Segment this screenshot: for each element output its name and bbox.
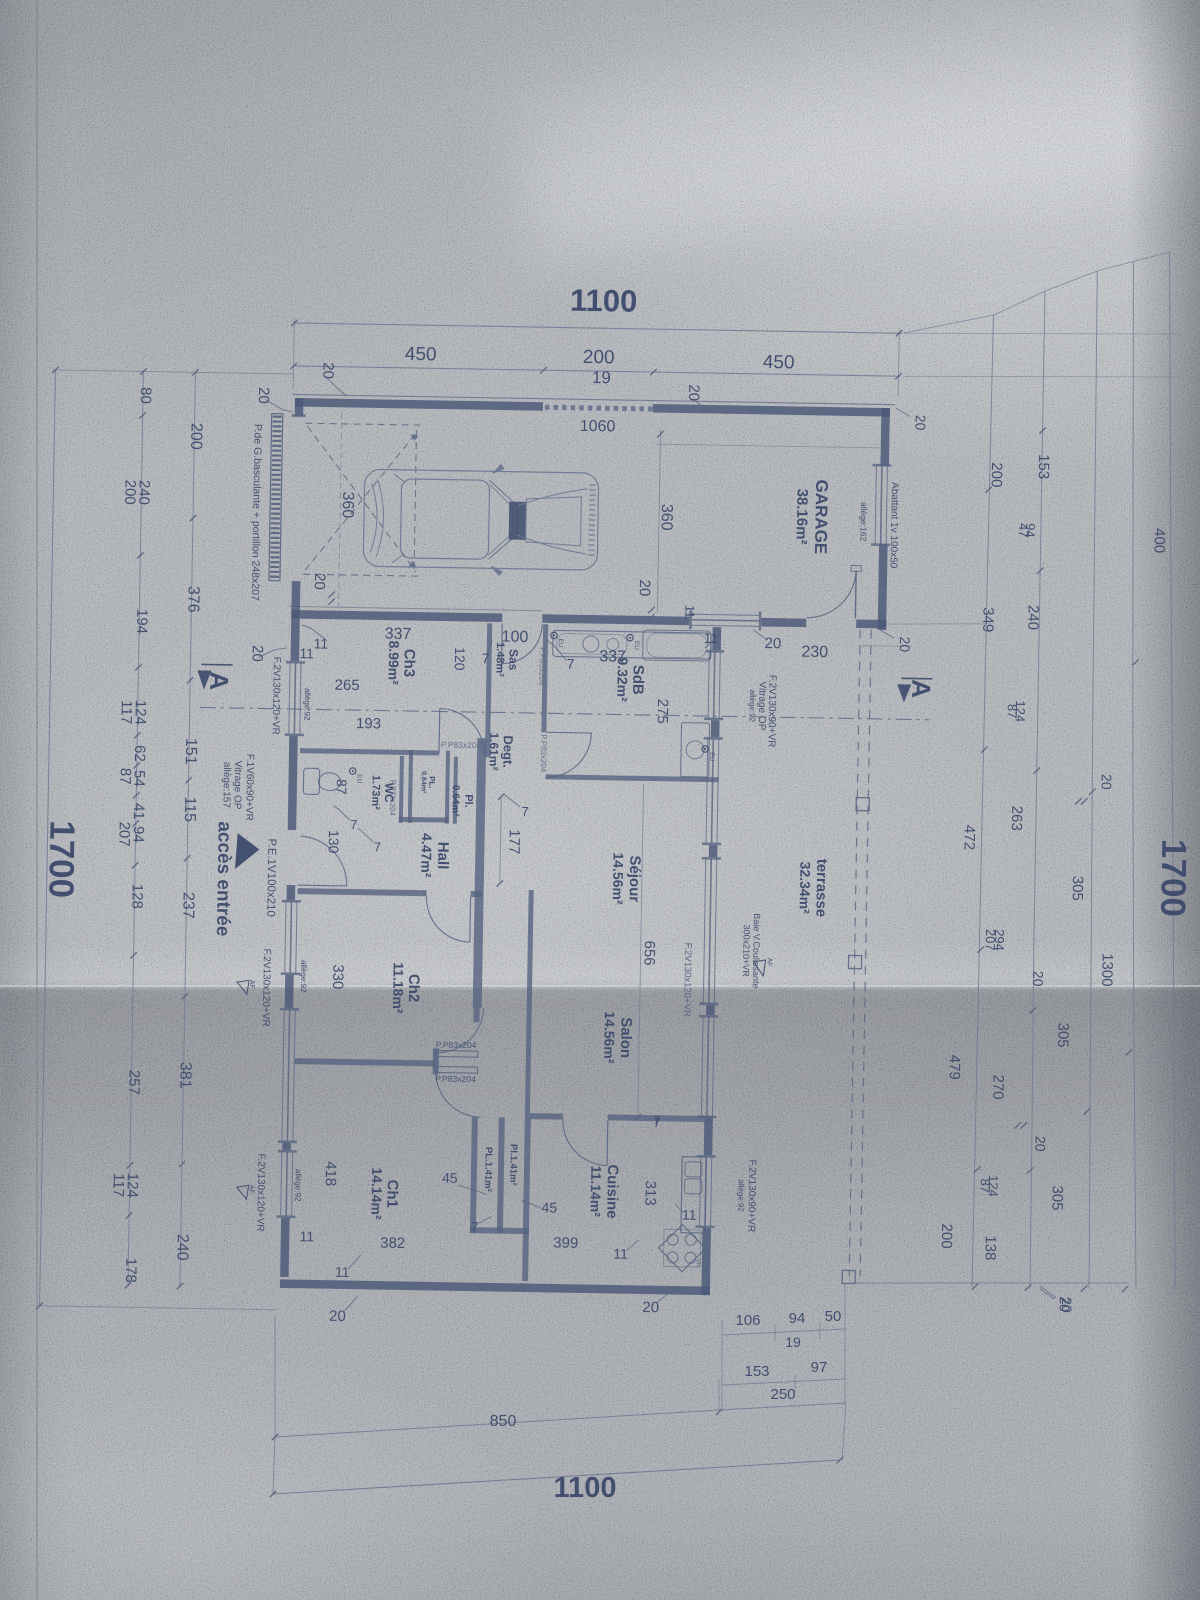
svg-text:656: 656 — [640, 940, 657, 965]
svg-text:F.2V130x120+VR: F.2V130x120+VR — [270, 657, 282, 735]
svg-text:257: 257 — [125, 1070, 142, 1095]
svg-text:450: 450 — [405, 344, 437, 366]
svg-text:P.P83x204: P.P83x204 — [435, 1073, 476, 1084]
svg-text:87: 87 — [334, 779, 350, 795]
svg-text:151: 151 — [182, 738, 199, 765]
svg-text:305: 305 — [1069, 876, 1086, 901]
svg-text:allège:92: allège:92 — [302, 688, 312, 721]
svg-text:41: 41 — [130, 803, 147, 820]
svg-text:1100: 1100 — [554, 1472, 617, 1504]
svg-text:153: 153 — [1035, 454, 1052, 479]
svg-text:138: 138 — [982, 1235, 999, 1260]
svg-text:AF: AF — [248, 980, 255, 989]
svg-text:PL.: PL. — [427, 776, 436, 789]
svg-text:P.P73x204: P.P73x204 — [388, 780, 398, 816]
svg-text:120: 120 — [452, 647, 468, 671]
svg-text:11.18m²: 11.18m² — [390, 962, 407, 1014]
svg-text:20: 20 — [329, 1308, 346, 1325]
svg-text:117: 117 — [109, 1173, 126, 1197]
svg-text:62: 62 — [131, 745, 148, 762]
svg-text:7: 7 — [653, 1113, 660, 1127]
svg-text:F.2V130x90+VR: F.2V130x90+VR — [766, 675, 778, 748]
svg-text:F.2V130x120+VR: F.2V130x120+VR — [681, 943, 693, 1018]
svg-text:153: 153 — [744, 1363, 769, 1380]
svg-text:EU: EU — [708, 752, 715, 761]
svg-text:11.14m²: 11.14m² — [587, 1165, 604, 1217]
svg-text:20: 20 — [1098, 774, 1114, 790]
svg-text:20: 20 — [642, 1299, 659, 1316]
svg-text:20: 20 — [319, 362, 336, 379]
svg-text:20: 20 — [255, 387, 272, 404]
svg-text:1.73m²: 1.73m² — [369, 775, 382, 810]
svg-text:87: 87 — [1005, 704, 1020, 719]
svg-text:360: 360 — [658, 504, 675, 531]
svg-text:106: 106 — [735, 1312, 760, 1329]
svg-text:230: 230 — [801, 644, 828, 661]
svg-text:7: 7 — [471, 1219, 478, 1234]
svg-text:20: 20 — [1030, 971, 1046, 987]
svg-text:terrasse: terrasse — [812, 859, 830, 918]
svg-text:47: 47 — [1016, 523, 1031, 538]
svg-text:200: 200 — [187, 423, 204, 450]
svg-text:Degt.: Degt. — [500, 735, 516, 768]
svg-text:20: 20 — [897, 636, 913, 652]
svg-text:45: 45 — [541, 1199, 557, 1215]
svg-text:337: 337 — [385, 626, 412, 643]
svg-text:100: 100 — [501, 629, 528, 646]
svg-text:11: 11 — [613, 1246, 628, 1262]
svg-text:87: 87 — [978, 1178, 993, 1193]
svg-text:19: 19 — [785, 1334, 801, 1350]
svg-text:EU: EU — [355, 774, 362, 783]
svg-text:allège:92: allège:92 — [299, 960, 309, 993]
svg-text:193: 193 — [356, 715, 381, 732]
svg-text:7: 7 — [482, 650, 490, 666]
svg-text:32.34m²: 32.34m² — [797, 861, 814, 914]
svg-text:11: 11 — [682, 1207, 697, 1223]
svg-text:7: 7 — [374, 839, 381, 854]
svg-text:1700: 1700 — [41, 820, 81, 899]
svg-text:263: 263 — [1008, 806, 1025, 831]
svg-text:117: 117 — [117, 700, 134, 724]
svg-text:240: 240 — [1024, 605, 1041, 630]
svg-text:F.1V60x90+VR: F.1V60x90+VR — [243, 754, 255, 821]
svg-text:50: 50 — [825, 1308, 842, 1325]
svg-text:207: 207 — [983, 929, 998, 951]
svg-text:Pl.: Pl. — [462, 794, 474, 808]
svg-text:237: 237 — [179, 892, 196, 919]
svg-text:20: 20 — [311, 573, 328, 590]
svg-text:80: 80 — [137, 387, 154, 404]
svg-text:Sas: Sas — [506, 649, 520, 671]
svg-text:allège:92: allège:92 — [736, 1179, 746, 1212]
svg-text:400: 400 — [1150, 528, 1167, 553]
svg-text:1.61m²: 1.61m² — [487, 732, 502, 770]
svg-text:allège:92: allège:92 — [747, 689, 757, 722]
svg-text:265: 265 — [334, 677, 359, 694]
svg-text:P.P83x204: P.P83x204 — [539, 734, 549, 773]
svg-text:0.64m²: 0.64m² — [449, 785, 461, 818]
svg-text:AF: AF — [248, 1185, 255, 1194]
svg-text:1700: 1700 — [1153, 839, 1193, 918]
svg-text:F.2V130x90+VR: F.2V130x90+VR — [745, 1159, 757, 1232]
svg-text:200: 200 — [121, 480, 138, 505]
svg-text:360: 360 — [339, 491, 356, 518]
svg-text:11: 11 — [299, 645, 314, 661]
svg-text:305: 305 — [1054, 1022, 1071, 1047]
svg-text:Salon: Salon — [617, 1017, 635, 1058]
svg-text:1100: 1100 — [570, 283, 638, 319]
svg-text:1300: 1300 — [1098, 953, 1116, 987]
svg-text:128: 128 — [128, 884, 145, 909]
svg-text:305: 305 — [1048, 1185, 1065, 1210]
svg-text:14.56m²: 14.56m² — [601, 1011, 618, 1064]
svg-text:94: 94 — [789, 1310, 806, 1327]
svg-text:Hall: Hall — [434, 842, 451, 870]
svg-text:allège:92: allège:92 — [293, 1169, 303, 1202]
svg-text:Vitrage OP: Vitrage OP — [231, 761, 243, 810]
svg-text:20: 20 — [249, 645, 266, 662]
svg-text:EU: EU — [557, 638, 564, 647]
svg-text:20: 20 — [764, 635, 781, 652]
svg-text:270: 270 — [989, 1074, 1006, 1099]
svg-text:178: 178 — [122, 1258, 139, 1283]
svg-text:11: 11 — [299, 1228, 314, 1244]
svg-text:7: 7 — [567, 656, 575, 672]
svg-text:A: A — [906, 679, 936, 699]
svg-text:8.99m²: 8.99m² — [385, 640, 402, 685]
svg-text:7: 7 — [521, 804, 528, 819]
svg-text:207: 207 — [115, 822, 132, 847]
svg-text:Séjour: Séjour — [626, 855, 644, 902]
svg-text:19: 19 — [592, 368, 611, 387]
svg-text:97: 97 — [811, 1359, 828, 1376]
svg-text:P.P83x204: P.P83x204 — [537, 647, 547, 686]
svg-text:330: 330 — [329, 964, 346, 989]
svg-text:194: 194 — [133, 609, 150, 634]
svg-text:479: 479 — [946, 1055, 963, 1080]
svg-text:200: 200 — [938, 1223, 955, 1248]
svg-text:382: 382 — [380, 1235, 405, 1252]
svg-text:14.56m²: 14.56m² — [610, 852, 627, 905]
svg-text:87: 87 — [116, 768, 133, 785]
svg-text:VH: VH — [694, 1259, 700, 1267]
svg-text:P.P83x204: P.P83x204 — [441, 740, 482, 751]
svg-text:850: 850 — [490, 1413, 517, 1430]
svg-text:275: 275 — [654, 699, 671, 724]
svg-text:45: 45 — [442, 1170, 458, 1186]
svg-text:11: 11 — [682, 605, 697, 619]
svg-text:EU: EU — [633, 641, 640, 650]
svg-text:accès entrée: accès entrée — [212, 821, 235, 936]
svg-text:450: 450 — [763, 352, 795, 374]
svg-text:20: 20 — [913, 415, 929, 431]
svg-text:4.47m²: 4.47m² — [418, 833, 435, 878]
svg-text:399: 399 — [553, 1234, 578, 1251]
svg-text:AF: AF — [765, 958, 772, 967]
svg-text:Abattant 1v 100x50: Abattant 1v 100x50 — [888, 482, 900, 569]
svg-text:F.2V130x120+VR: F.2V130x120+VR — [260, 948, 272, 1026]
svg-text:1.48m²: 1.48m² — [493, 642, 506, 677]
svg-text:P.P83x204: P.P83x204 — [436, 1039, 477, 1050]
svg-text:313: 313 — [641, 1180, 658, 1205]
svg-text:allège:157: allège:157 — [220, 762, 232, 809]
svg-text:472: 472 — [960, 825, 977, 850]
svg-text:GARAGE: GARAGE — [811, 479, 831, 554]
svg-text:250: 250 — [770, 1386, 795, 1403]
svg-text:allège:162: allège:162 — [858, 502, 869, 542]
svg-text:300x210+VR: 300x210+VR — [741, 924, 752, 977]
svg-text:11: 11 — [313, 635, 328, 651]
svg-text:200: 200 — [583, 347, 615, 369]
svg-text:20: 20 — [636, 579, 653, 596]
svg-text:11: 11 — [335, 1264, 350, 1280]
svg-text:177: 177 — [505, 829, 522, 854]
svg-text:20: 20 — [1059, 1297, 1075, 1313]
svg-text:337: 337 — [599, 648, 626, 665]
svg-text:200: 200 — [988, 462, 1005, 487]
svg-text:20: 20 — [1032, 1136, 1048, 1152]
svg-text:Cuisine: Cuisine — [603, 1164, 621, 1218]
svg-text:7: 7 — [350, 817, 357, 832]
svg-text:14.14m²: 14.14m² — [368, 1167, 385, 1220]
svg-text:381: 381 — [176, 1062, 193, 1089]
svg-text:Pl.1.41m²: Pl.1.41m² — [507, 1144, 519, 1186]
svg-text:1060: 1060 — [580, 418, 616, 436]
svg-text:38.16m²: 38.16m² — [793, 489, 811, 545]
svg-text:F.2V130x120+VR: F.2V130x120+VR — [254, 1153, 266, 1231]
svg-text:240: 240 — [173, 1234, 190, 1261]
svg-text:376: 376 — [184, 586, 201, 613]
svg-text:0.64m²: 0.64m² — [419, 771, 426, 794]
svg-text:P.E.1V100x210: P.E.1V100x210 — [264, 838, 277, 917]
svg-text:115: 115 — [181, 796, 198, 822]
svg-text:418: 418 — [322, 1161, 339, 1186]
svg-text:349: 349 — [979, 607, 996, 632]
svg-text:PL.1.41m²: PL.1.41m² — [482, 1147, 494, 1192]
svg-text:130: 130 — [326, 830, 342, 854]
